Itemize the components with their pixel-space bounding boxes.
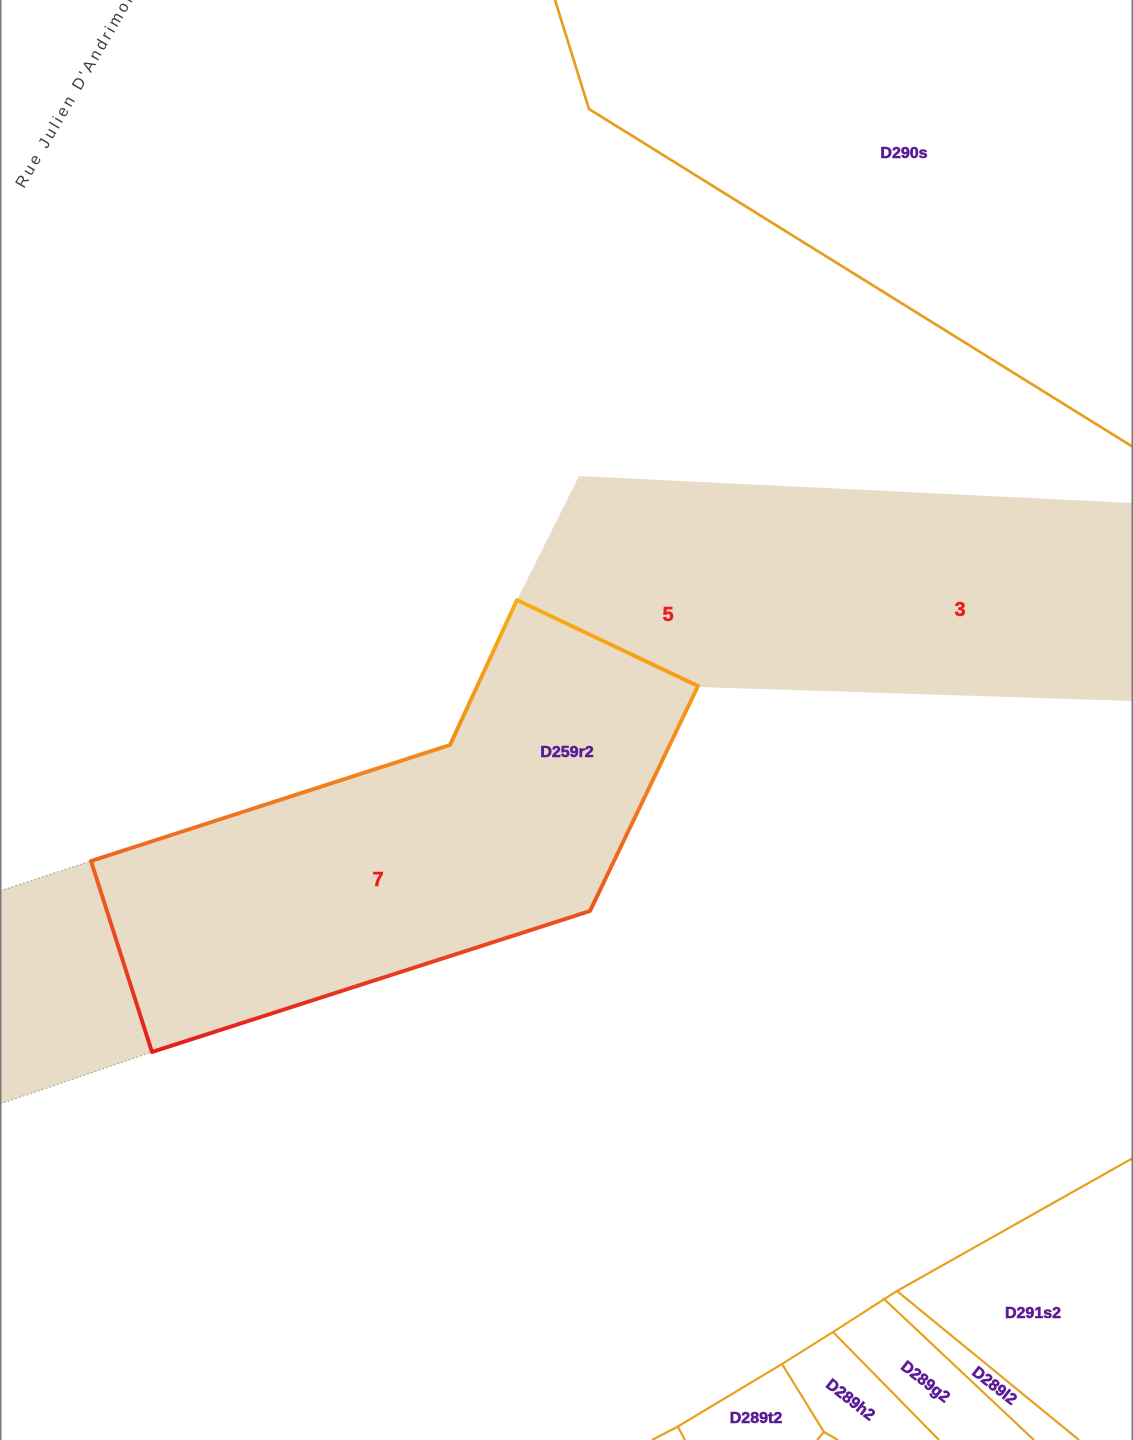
svg-text:3: 3 bbox=[954, 599, 965, 621]
svg-text:5: 5 bbox=[662, 604, 673, 626]
svg-text:7: 7 bbox=[372, 869, 383, 891]
svg-text:D259r2: D259r2 bbox=[540, 744, 593, 761]
svg-text:D291s2: D291s2 bbox=[1005, 1305, 1061, 1322]
svg-text:D290s: D290s bbox=[880, 145, 927, 162]
svg-text:D289t2: D289t2 bbox=[730, 1410, 783, 1427]
